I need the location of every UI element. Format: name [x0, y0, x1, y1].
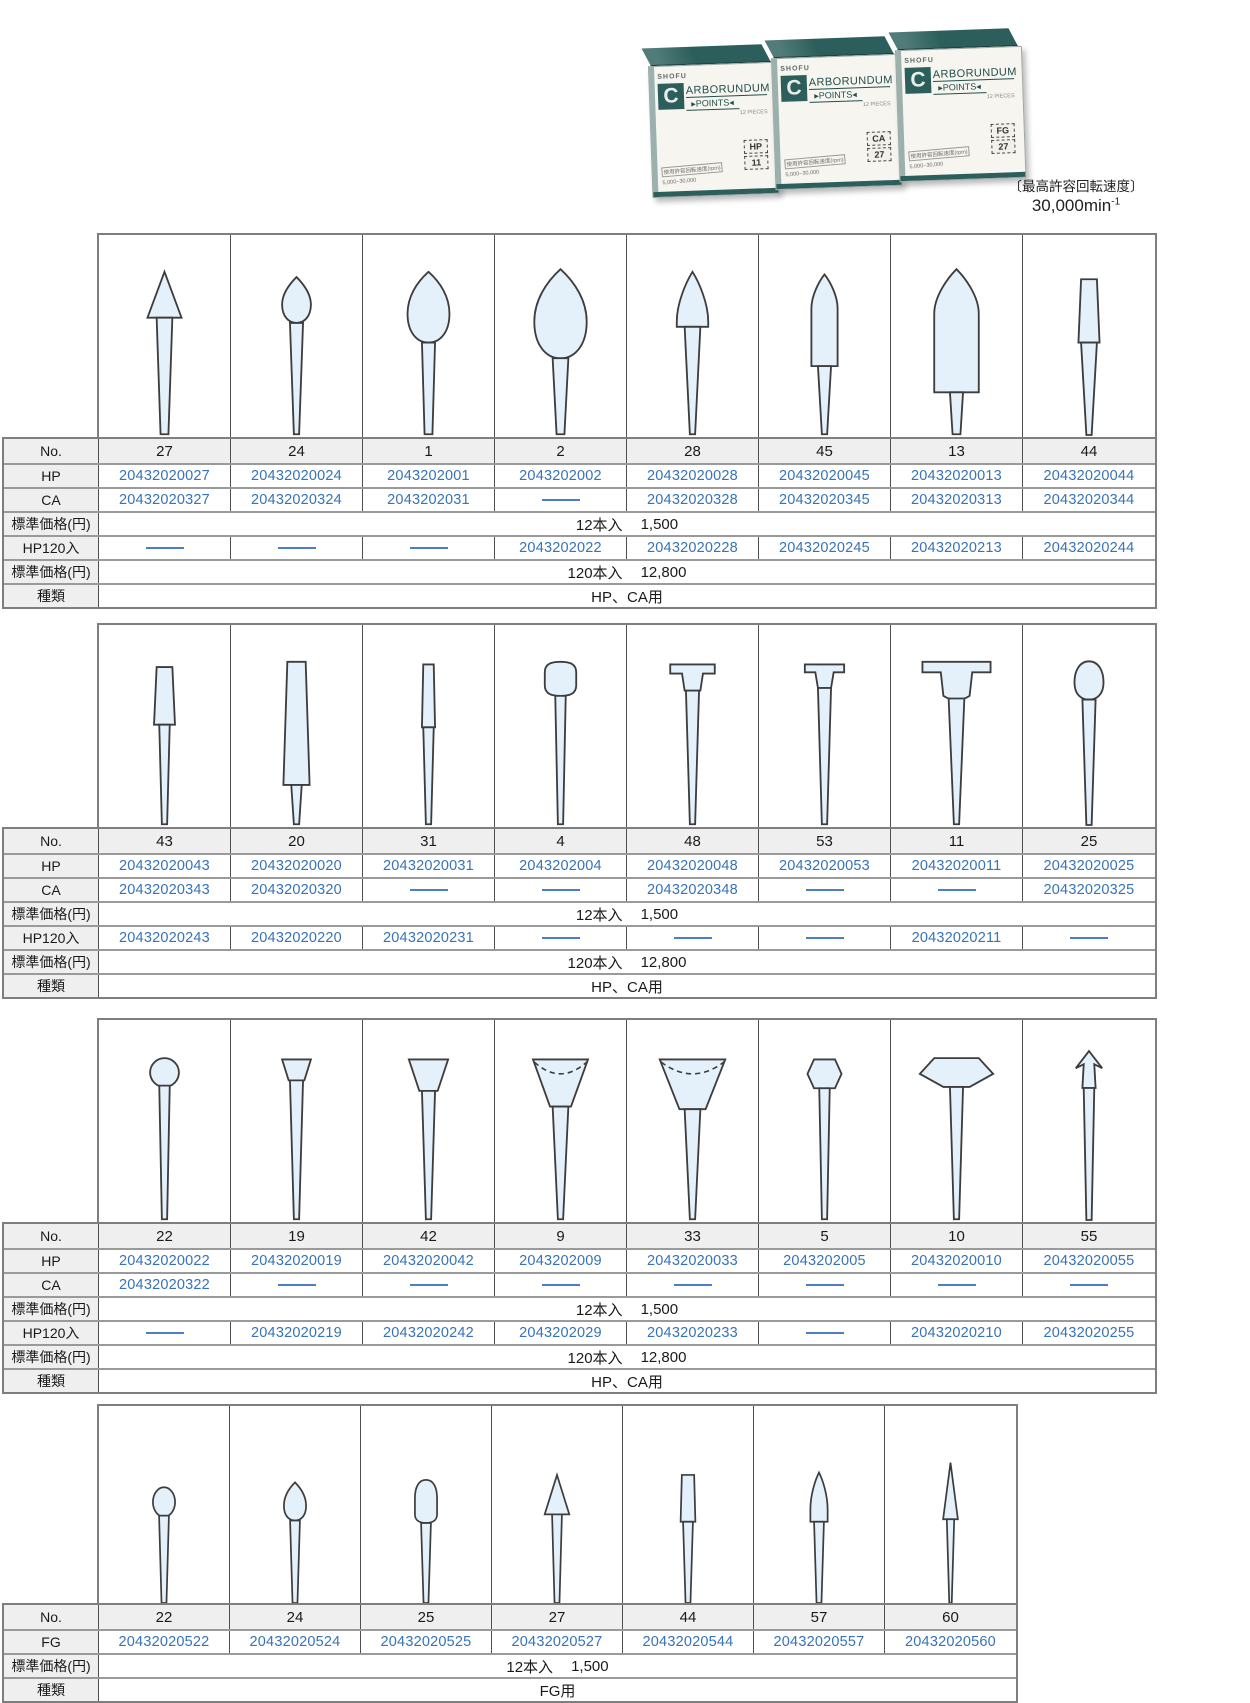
table-row: HP20432020027204320200242043202001204320… [4, 463, 1155, 487]
teardrop-medium-icon [363, 235, 495, 437]
box-title: ARBORUNDUM [933, 66, 1014, 82]
oval-bud-icon [361, 1406, 492, 1603]
point-number: 33 [627, 1224, 759, 1248]
points-table-2: No.432031448531125HP20432020043204320200… [2, 623, 1157, 999]
spec-grid: No.22242527445760FG204320205222043202052… [2, 1603, 1018, 1703]
order-code-link[interactable]: 2043202001 [387, 468, 470, 484]
wheel-pointed-icon [891, 1020, 1023, 1222]
point-number: 44 [1023, 439, 1155, 463]
order-code-link[interactable]: 2043202022 [519, 540, 602, 556]
standard-price-cell: 120本入12,800 [99, 1346, 1155, 1368]
bullet-slim-icon [759, 235, 891, 437]
table-row: 標準価格(円)120本入12,800 [4, 949, 1155, 973]
row-label: 種類 [4, 1679, 99, 1701]
standard-price-cell: 12本入1,500 [99, 1655, 1016, 1677]
carborundum-c-logo-icon: C [905, 67, 932, 94]
cone-point-icon [99, 235, 231, 437]
order-code-link[interactable]: 20432020327 [119, 492, 210, 508]
cup-small-icon [231, 1020, 363, 1222]
order-code-link[interactable]: 20432020043 [119, 858, 210, 874]
spec-grid: No.27241228451344HP204320200272043202002… [2, 437, 1157, 609]
table-row: HP20432020043204320200202043202003120432… [4, 853, 1155, 877]
table-row: HP120入2043202024320432020220204320202312… [4, 925, 1155, 949]
row-label: CA [4, 489, 99, 511]
knob-wheel-icon [495, 625, 627, 827]
carborundum-c-logo-icon: C [781, 75, 808, 102]
kind-cell: HP、CA用 [99, 585, 1155, 607]
points-table-1: No.27241228451344HP204320200272043202002… [2, 233, 1157, 609]
box-title: ARBORUNDUM [686, 82, 767, 98]
standard-price-cell: 12本入1,500 [99, 513, 1155, 535]
no-product-dash [410, 889, 448, 891]
kind-cell: HP、CA用 [99, 975, 1155, 997]
box-usage-note: 使用許容回転速度(rpm) 5,000~30,000 [908, 140, 971, 170]
brand-logo: SHOFU [904, 54, 1013, 65]
order-code-link[interactable]: 20432020244 [1044, 540, 1135, 556]
t-head-small-icon [627, 625, 759, 827]
point-number: 42 [363, 1224, 495, 1248]
order-code-link[interactable]: 20432020527 [512, 1634, 603, 1650]
row-label: HP120入 [4, 1322, 99, 1344]
teardrop-large-icon [495, 235, 627, 437]
shape-row [97, 1404, 1018, 1603]
no-product-dash [410, 547, 448, 549]
no-product-dash [278, 1284, 316, 1286]
table-row: HP120入2043202022204320202282043202024520… [4, 535, 1155, 559]
order-code-link[interactable]: 20432020024 [251, 468, 342, 484]
table-row: No.22242527445760 [4, 1605, 1016, 1629]
point-number: 27 [492, 1605, 623, 1629]
point-number: 9 [495, 1224, 627, 1248]
order-code-link[interactable]: 20432020213 [911, 540, 1002, 556]
row-label: 種類 [4, 975, 99, 997]
point-number: 4 [495, 829, 627, 853]
order-code-link[interactable]: 20432020220 [251, 930, 342, 946]
order-code-link[interactable]: 20432020219 [251, 1325, 342, 1341]
box-usage-note: 使用許容回転速度(rpm) 5,000~30,000 [661, 156, 724, 186]
table-row: 種類FG用 [4, 1677, 1016, 1701]
row-label: 標準価格(円) [4, 951, 99, 973]
table-row: No.432031448531125 [4, 829, 1155, 853]
brand-logo: SHOFU [780, 62, 889, 73]
order-code-link[interactable]: 20432020055 [1044, 1253, 1135, 1269]
no-product-dash [410, 1284, 448, 1286]
box-subtitle: ▸POINTS◂ [809, 89, 862, 103]
row-label: HP [4, 1250, 99, 1272]
order-code-link[interactable]: 20432020020 [251, 858, 342, 874]
order-code-link[interactable]: 2043202004 [519, 858, 602, 874]
table-row: CA20432020322 [4, 1272, 1155, 1296]
point-number: 2 [495, 439, 627, 463]
cone-small-icon [492, 1406, 623, 1603]
order-code-link[interactable]: 20432020343 [119, 882, 210, 898]
row-label: HP [4, 855, 99, 877]
point-number: 60 [885, 1605, 1016, 1629]
no-product-dash [146, 1332, 184, 1334]
table-row: 標準価格(円)120本入12,800 [4, 1344, 1155, 1368]
kind-cell: FG用 [99, 1679, 1016, 1701]
box-type-tag: CA 27 [867, 131, 892, 162]
points-table-3: No.22194293351055HP204320200222043202001… [2, 1018, 1157, 1394]
point-number: 44 [623, 1605, 754, 1629]
order-code-link[interactable]: 2043202009 [519, 1253, 602, 1269]
row-label: HP120入 [4, 537, 99, 559]
row-label: HP120入 [4, 927, 99, 949]
row-label: CA [4, 879, 99, 901]
order-code-link[interactable]: 20432020313 [911, 492, 1002, 508]
order-code-link[interactable]: 20432020557 [774, 1634, 865, 1650]
row-label: 標準価格(円) [4, 903, 99, 925]
order-code-link[interactable]: 20432020231 [383, 930, 474, 946]
table-row: HP20432020022204320200192043202004220432… [4, 1248, 1155, 1272]
table-row: No.27241228451344 [4, 439, 1155, 463]
box-title: ARBORUNDUM [809, 74, 890, 90]
taper-cyl-small-icon [623, 1406, 754, 1603]
flame-icon [627, 235, 759, 437]
product-boxes-photo: SHOFU C ARBORUNDUM ▸POINTS◂ 12 PIECES 使用… [650, 30, 1050, 192]
order-code-link[interactable]: 20432020228 [647, 540, 738, 556]
order-code-link[interactable]: 20432020011 [912, 858, 1002, 874]
cup-xlarge-icon [627, 1020, 759, 1222]
order-code-link[interactable]: 2043202005 [783, 1253, 866, 1269]
row-label: No. [4, 1224, 99, 1248]
order-code-link[interactable]: 20432020322 [119, 1277, 210, 1293]
hex-barrel-icon [759, 1020, 891, 1222]
row-label: 種類 [4, 1370, 99, 1392]
bud-round-icon [1023, 625, 1155, 827]
point-number: 13 [891, 439, 1023, 463]
no-product-dash [542, 1284, 580, 1286]
order-code-link[interactable]: 20432020211 [912, 930, 1002, 946]
shape-row [97, 1018, 1157, 1222]
table-row: 標準価格(円)12本入1,500 [4, 1653, 1016, 1677]
ball-small-icon [99, 1406, 230, 1603]
no-product-dash [1070, 1284, 1108, 1286]
spear-icon [1023, 1020, 1155, 1222]
row-label: FG [4, 1631, 99, 1653]
row-label: No. [4, 1605, 99, 1629]
row-label: No. [4, 829, 99, 853]
point-number: 1 [363, 439, 495, 463]
point-number: 27 [99, 439, 231, 463]
catalog-page: { "header": { "max_speed_caption": "〔最高許… [0, 0, 1250, 1703]
cup-large-icon [495, 1020, 627, 1222]
flame-slim-icon [754, 1406, 885, 1603]
order-code-link[interactable]: 20432020524 [250, 1634, 341, 1650]
point-number: 24 [230, 1605, 361, 1629]
brand-logo: SHOFU [657, 70, 766, 81]
order-code-link[interactable]: 20432020525 [381, 1634, 472, 1650]
point-number: 48 [627, 829, 759, 853]
order-code-link[interactable]: 20432020233 [647, 1325, 738, 1341]
no-product-dash [806, 889, 844, 891]
no-product-dash [1070, 937, 1108, 939]
row-label: HP [4, 465, 99, 487]
table-row: CA20432020327204320203242043202031204320… [4, 487, 1155, 511]
order-code-link[interactable]: 20432020028 [647, 468, 738, 484]
order-code-link[interactable]: 20432020344 [1044, 492, 1135, 508]
no-product-dash [674, 937, 712, 939]
no-product-dash [278, 547, 316, 549]
point-number: 55 [1023, 1224, 1155, 1248]
no-product-dash [806, 937, 844, 939]
point-number: 53 [759, 829, 891, 853]
point-number: 24 [231, 439, 363, 463]
order-code-link[interactable]: 20432020324 [251, 492, 342, 508]
table-row: CA20432020343204320203202043202034820432… [4, 877, 1155, 901]
standard-price-cell: 12本入1,500 [99, 903, 1155, 925]
table-row: HP120入2043202021920432020242204320202920… [4, 1320, 1155, 1344]
box-type-tag: HP 11 [744, 139, 769, 170]
point-number: 20 [231, 829, 363, 853]
table-row: 種類HP、CA用 [4, 973, 1155, 997]
order-code-link[interactable]: 20432020033 [647, 1253, 738, 1269]
order-code-link[interactable]: 20432020027 [119, 468, 210, 484]
spec-grid: No.432031448531125HP20432020043204320200… [2, 827, 1157, 999]
row-label: CA [4, 1274, 99, 1296]
order-code-link[interactable]: 20432020560 [905, 1634, 996, 1650]
order-code-link[interactable]: 20432020048 [647, 858, 738, 874]
table-row: 標準価格(円)12本入1,500 [4, 901, 1155, 925]
point-number: 31 [363, 829, 495, 853]
order-code-link[interactable]: 20432020042 [383, 1253, 474, 1269]
taper-small-icon [99, 625, 231, 827]
order-code-link[interactable]: 20432020013 [911, 468, 1002, 484]
order-code-link[interactable]: 2043202002 [519, 468, 602, 484]
order-code-link[interactable]: 20432020328 [647, 492, 738, 508]
shape-row [97, 623, 1157, 827]
point-number: 25 [1023, 829, 1155, 853]
point-number: 28 [627, 439, 759, 463]
cylinder-thin-icon [363, 625, 495, 827]
order-code-link[interactable]: 20432020245 [779, 540, 870, 556]
point-number: 22 [99, 1224, 231, 1248]
no-product-dash [674, 1284, 712, 1286]
table-row: 標準価格(円)12本入1,500 [4, 1296, 1155, 1320]
t-head-wide-icon [891, 625, 1023, 827]
no-product-dash [806, 1284, 844, 1286]
needle-icon [885, 1406, 1016, 1603]
no-product-dash [938, 889, 976, 891]
order-code-link[interactable]: 20432020243 [119, 930, 210, 946]
table-row: FG20432020522204320205242043202052520432… [4, 1629, 1016, 1653]
spec-grid: No.22194293351055HP204320200222043202001… [2, 1222, 1157, 1394]
order-code-link[interactable]: 20432020022 [119, 1253, 210, 1269]
bud-small-icon [231, 235, 363, 437]
order-code-link[interactable]: 20432020345 [779, 492, 870, 508]
order-code-link[interactable]: 20432020031 [383, 858, 474, 874]
row-label: No. [4, 439, 99, 463]
order-code-link[interactable]: 2043202031 [387, 492, 470, 508]
product-box-hp: SHOFU C ARBORUNDUM ▸POINTS◂ 12 PIECES 使用… [647, 44, 779, 204]
table-row: No.22194293351055 [4, 1224, 1155, 1248]
order-code-link[interactable]: 20432020242 [383, 1325, 474, 1341]
table-row: 種類HP、CA用 [4, 1368, 1155, 1392]
ball-icon [99, 1020, 231, 1222]
table-row: 標準価格(円)12本入1,500 [4, 511, 1155, 535]
box-usage-note: 使用許容回転速度(rpm) 5,000~30,000 [784, 148, 847, 178]
row-label: 標準価格(円) [4, 513, 99, 535]
no-product-dash [542, 937, 580, 939]
no-product-dash [146, 547, 184, 549]
points-table-4: No.22242527445760FG204320205222043202052… [2, 1404, 1018, 1703]
point-number: 19 [231, 1224, 363, 1248]
point-number: 10 [891, 1224, 1023, 1248]
order-code-link[interactable]: 20432020019 [251, 1253, 342, 1269]
order-code-link[interactable]: 20432020325 [1044, 882, 1135, 898]
point-number: 22 [99, 1605, 230, 1629]
order-code-link[interactable]: 20432020045 [779, 468, 870, 484]
table-row: 標準価格(円)120本入12,800 [4, 559, 1155, 583]
kind-cell: HP、CA用 [99, 1370, 1155, 1392]
order-code-link[interactable]: 20432020348 [647, 882, 738, 898]
point-number: 45 [759, 439, 891, 463]
no-product-dash [542, 889, 580, 891]
standard-price-cell: 12本入1,500 [99, 1298, 1155, 1320]
product-box-ca: SHOFU C ARBORUNDUM ▸POINTS◂ 12 PIECES 使用… [770, 36, 902, 196]
standard-price-cell: 120本入12,800 [99, 561, 1155, 583]
t-head-small2-icon [759, 625, 891, 827]
flame-small-icon [230, 1406, 361, 1603]
order-code-link[interactable]: 2043202029 [519, 1325, 602, 1341]
row-label: 標準価格(円) [4, 561, 99, 583]
max-speed-value: 30,000min-1 [995, 196, 1157, 216]
box-type-tag: FG 27 [991, 123, 1016, 154]
taper-long-icon [231, 625, 363, 827]
no-product-dash [542, 499, 580, 501]
point-number: 5 [759, 1224, 891, 1248]
order-code-link[interactable]: 20432020025 [1044, 858, 1135, 874]
no-product-dash [806, 1332, 844, 1334]
box-subtitle: ▸POINTS◂ [686, 97, 739, 111]
table-row: 種類HP、CA用 [4, 583, 1155, 607]
order-code-link[interactable]: 20432020320 [251, 882, 342, 898]
row-label: 標準価格(円) [4, 1298, 99, 1320]
no-product-dash [938, 1284, 976, 1286]
standard-price-cell: 120本入12,800 [99, 951, 1155, 973]
point-number: 11 [891, 829, 1023, 853]
row-label: 種類 [4, 585, 99, 607]
order-code-link[interactable]: 20432020210 [911, 1325, 1002, 1341]
carborundum-c-logo-icon: C [658, 83, 685, 110]
order-code-link[interactable]: 20432020044 [1044, 468, 1135, 484]
order-code-link[interactable]: 20432020255 [1044, 1325, 1135, 1341]
point-number: 43 [99, 829, 231, 853]
order-code-link[interactable]: 20432020544 [643, 1634, 734, 1650]
order-code-link[interactable]: 20432020053 [779, 858, 870, 874]
point-number: 57 [754, 1605, 885, 1629]
taper-cylinder-icon [1023, 235, 1155, 437]
row-label: 標準価格(円) [4, 1655, 99, 1677]
box-subtitle: ▸POINTS◂ [933, 81, 986, 95]
shape-row [97, 233, 1157, 437]
product-box-fg: SHOFU C ARBORUNDUM ▸POINTS◂ 12 PIECES 使用… [894, 28, 1026, 188]
order-code-link[interactable]: 20432020010 [911, 1253, 1002, 1269]
bullet-large-icon [891, 235, 1023, 437]
order-code-link[interactable]: 20432020522 [119, 1634, 210, 1650]
point-number: 25 [361, 1605, 492, 1629]
row-label: 標準価格(円) [4, 1346, 99, 1368]
cup-medium-icon [363, 1020, 495, 1222]
